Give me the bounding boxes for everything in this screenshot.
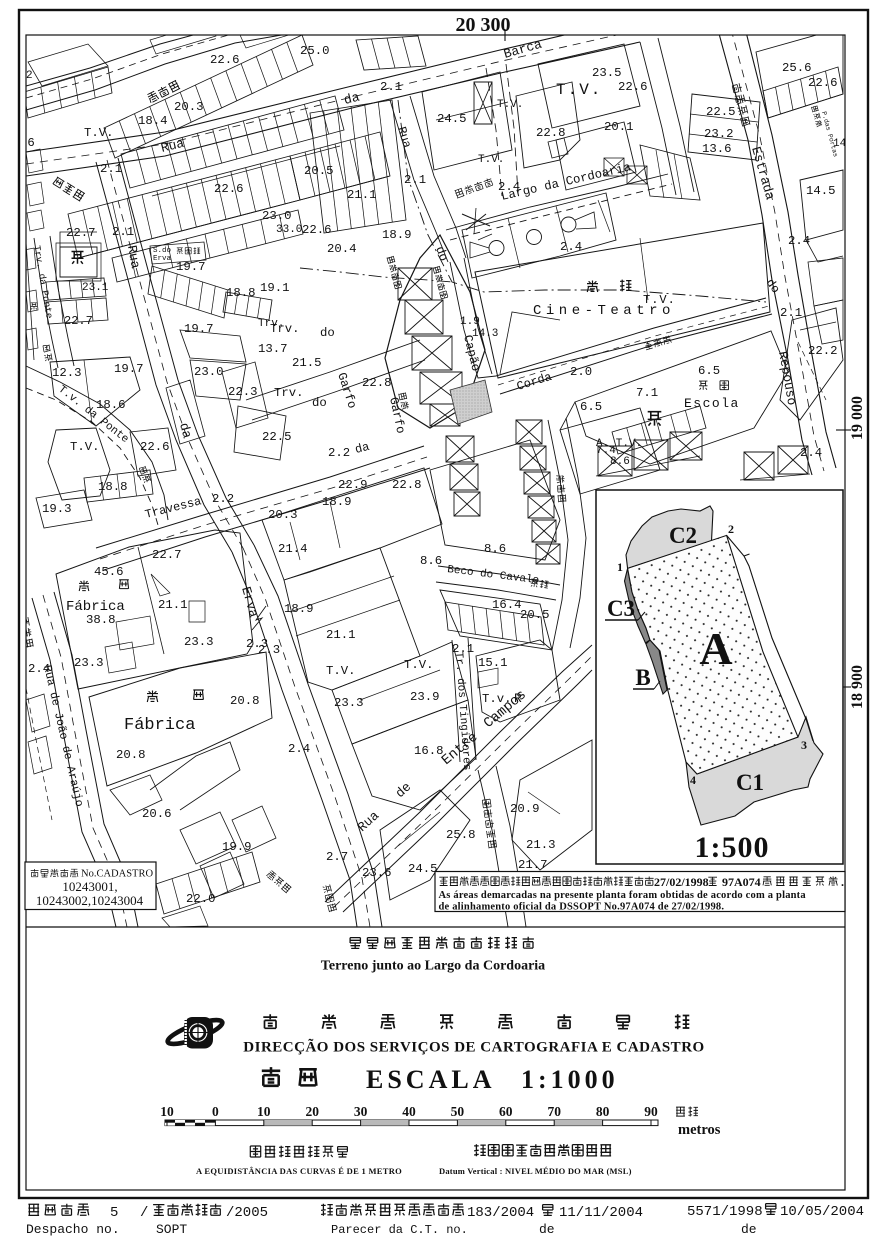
svg-text:10243001,: 10243001, — [62, 879, 117, 894]
svg-text:1:500: 1:500 — [695, 831, 770, 864]
svg-text:13.6: 13.6 — [702, 142, 732, 156]
svg-text:40: 40 — [402, 1104, 416, 1119]
svg-text:33.0: 33.0 — [276, 224, 302, 236]
svg-text:19.7: 19.7 — [184, 322, 214, 336]
svg-text:23.5: 23.5 — [592, 66, 622, 80]
svg-text:18.8: 18.8 — [226, 286, 256, 300]
svg-text:14.3: 14.3 — [472, 328, 498, 340]
svg-text:As áreas demarcadas na present: As áreas demarcadas na presente planta f… — [439, 890, 807, 901]
svg-text:Erva: Erva — [153, 255, 172, 263]
svg-text:11/11/2004: 11/11/2004 — [559, 1205, 643, 1221]
svg-text:10: 10 — [160, 1104, 174, 1119]
svg-text:2.4: 2.4 — [560, 240, 582, 254]
svg-text:T.V.: T.V. — [326, 664, 356, 678]
svg-text:18.8: 18.8 — [98, 480, 128, 494]
svg-text:20.3: 20.3 — [174, 100, 204, 114]
svg-text:20.4: 20.4 — [327, 242, 357, 256]
svg-text:2.2: 2.2 — [212, 492, 234, 506]
svg-text:2: 2 — [26, 70, 33, 82]
svg-text:18.9: 18.9 — [284, 602, 314, 616]
svg-text:22.3: 22.3 — [228, 385, 258, 399]
svg-text:T.V.: T.V. — [404, 658, 434, 672]
svg-text:metros: metros — [678, 1122, 721, 1138]
svg-text:2.2: 2.2 — [328, 446, 350, 460]
svg-text:20.1: 20.1 — [604, 120, 634, 134]
svg-text:Despacho no.: Despacho no. — [26, 1222, 120, 1237]
svg-text:27/02/1998: 27/02/1998 — [654, 875, 709, 889]
svg-text:22.6: 22.6 — [302, 223, 332, 237]
svg-text:23.1: 23.1 — [82, 282, 109, 294]
svg-text:22.9: 22.9 — [338, 478, 368, 492]
svg-text:ESCALA: ESCALA — [366, 1065, 495, 1094]
svg-text:20: 20 — [305, 1104, 319, 1119]
svg-text:24.5: 24.5 — [408, 862, 438, 876]
svg-text:20.5: 20.5 — [520, 608, 550, 622]
svg-text:T.V.: T.V. — [556, 81, 602, 99]
svg-text:19 000: 19 000 — [849, 396, 866, 440]
svg-text:21.3: 21.3 — [526, 838, 556, 852]
svg-text:22.8: 22.8 — [362, 376, 392, 390]
svg-text:22.6: 22.6 — [214, 182, 244, 196]
svg-text:do: do — [312, 396, 327, 410]
svg-text:2.1: 2.1 — [452, 642, 474, 656]
svg-text:25.6: 25.6 — [782, 61, 812, 75]
svg-text:23.9: 23.9 — [410, 690, 440, 704]
svg-text:R: R — [514, 691, 522, 706]
svg-text:14.5: 14.5 — [806, 184, 836, 198]
svg-text:18.9: 18.9 — [382, 228, 412, 242]
svg-text:6.5: 6.5 — [698, 364, 720, 378]
svg-text:80: 80 — [596, 1104, 610, 1119]
svg-text:Datum Vertical : NIVEL MÉDIO D: Datum Vertical : NIVEL MÉDIO DO MAR (MSL… — [439, 1166, 632, 1176]
svg-text:SOPT: SOPT — [156, 1222, 187, 1237]
svg-text:70: 70 — [547, 1104, 561, 1119]
svg-text:/2005: /2005 — [226, 1205, 268, 1221]
svg-text:8.6: 8.6 — [420, 554, 442, 568]
svg-text:8.6: 8.6 — [610, 456, 630, 468]
svg-text:16.8: 16.8 — [414, 744, 444, 758]
svg-text:8.6: 8.6 — [484, 542, 506, 556]
svg-text:21.5: 21.5 — [292, 356, 322, 370]
svg-text:Trv.: Trv. — [274, 386, 304, 400]
svg-text:2.7: 2.7 — [326, 850, 348, 864]
svg-text:1: 1 — [617, 560, 623, 574]
svg-text:C1: C1 — [736, 770, 764, 795]
svg-text:1:1000: 1:1000 — [521, 1065, 619, 1094]
svg-text:2.3: 2.3 — [258, 643, 280, 657]
svg-text:0: 0 — [212, 1104, 219, 1119]
svg-text:18.6: 18.6 — [96, 398, 126, 412]
svg-text:T.V.: T.V. — [84, 126, 114, 140]
svg-text:2.0: 2.0 — [570, 365, 592, 379]
svg-text:5: 5 — [110, 1205, 118, 1221]
svg-text:10243002,10243004: 10243002,10243004 — [36, 893, 144, 908]
svg-text:T.V.: T.V. — [497, 99, 523, 111]
svg-text:10: 10 — [257, 1104, 271, 1119]
svg-text:2: 2 — [728, 522, 734, 536]
svg-text:22.2: 22.2 — [808, 344, 838, 358]
svg-text:2.1: 2.1 — [100, 162, 122, 176]
svg-text:22.6: 22.6 — [618, 80, 648, 94]
svg-text:T.V.: T.V. — [70, 440, 100, 454]
svg-text:23.0: 23.0 — [194, 365, 224, 379]
svg-text:Parecer da C.T. no.: Parecer da C.T. no. — [331, 1223, 468, 1237]
svg-text:20.6: 20.6 — [142, 807, 172, 821]
svg-text:22.5: 22.5 — [262, 430, 292, 444]
svg-text:25.8: 25.8 — [446, 828, 476, 842]
svg-text:4: 4 — [690, 773, 696, 787]
svg-text:30: 30 — [354, 1104, 368, 1119]
svg-text:T.V.: T.V. — [643, 293, 676, 307]
svg-text:97A074: 97A074 — [722, 875, 761, 889]
svg-text:2.4: 2.4 — [28, 662, 50, 676]
svg-text:do: do — [320, 326, 335, 340]
svg-text:21.1: 21.1 — [326, 628, 356, 642]
svg-text:23.0: 23.0 — [262, 209, 292, 223]
svg-text:19.1: 19.1 — [260, 281, 290, 295]
svg-text:Fábrica: Fábrica — [124, 716, 195, 735]
svg-text:21.4: 21.4 — [278, 542, 308, 556]
svg-text:21.1: 21.1 — [158, 598, 188, 612]
svg-text:22.5: 22.5 — [706, 105, 736, 119]
svg-text:de alinhamento oficial da DSSO: de alinhamento oficial da DSSOPT No.97A0… — [439, 902, 725, 913]
svg-text:60: 60 — [499, 1104, 513, 1119]
svg-text:183/2004: 183/2004 — [467, 1205, 534, 1221]
svg-text:Escola: Escola — [684, 396, 740, 411]
svg-text:16.4: 16.4 — [492, 598, 522, 612]
svg-text:22.6: 22.6 — [140, 440, 170, 454]
svg-text:20.5: 20.5 — [304, 164, 334, 178]
svg-text:2.1: 2.1 — [380, 80, 402, 94]
svg-text:25.0: 25.0 — [300, 44, 330, 58]
svg-text:90: 90 — [644, 1104, 658, 1119]
svg-text:C2: C2 — [669, 523, 697, 548]
svg-text:22.8: 22.8 — [392, 478, 422, 492]
svg-text:2.4: 2.4 — [788, 234, 810, 248]
svg-text:.: . — [841, 875, 844, 889]
svg-text:5571/1998: 5571/1998 — [687, 1204, 763, 1220]
svg-text:20.8: 20.8 — [116, 748, 146, 762]
svg-text:C3: C3 — [607, 596, 635, 621]
svg-text:A EQUIDISTÂNCIA DAS CURVAS É D: A EQUIDISTÂNCIA DAS CURVAS É DE 1 METRO — [196, 1166, 402, 1176]
svg-text:2.1: 2.1 — [780, 306, 802, 320]
svg-text:22.8: 22.8 — [536, 126, 566, 140]
svg-text:T.v.: T.v. — [482, 692, 512, 706]
svg-text:2.1: 2.1 — [112, 225, 134, 239]
svg-text:10/05/2004: 10/05/2004 — [780, 1204, 864, 1220]
svg-text:B: B — [635, 665, 650, 690]
svg-text:20.3: 20.3 — [268, 508, 298, 522]
svg-text:7.1: 7.1 — [636, 386, 658, 400]
svg-text:2.4: 2.4 — [498, 180, 520, 194]
svg-text:22.7: 22.7 — [152, 548, 182, 562]
svg-text:22.7: 22.7 — [64, 314, 93, 328]
svg-text:13.7: 13.7 — [258, 342, 288, 356]
svg-text:Terreno junto ao Largo da Cord: Terreno junto ao Largo da Cordoaria — [321, 959, 545, 974]
svg-text:19.3: 19.3 — [42, 502, 72, 516]
svg-text:23.6: 23.6 — [362, 866, 392, 880]
svg-text:T.V.: T.V. — [478, 154, 504, 166]
svg-text:23.3: 23.3 — [74, 656, 104, 670]
svg-text:6.5: 6.5 — [580, 400, 602, 414]
svg-text:15.1: 15.1 — [478, 656, 508, 670]
svg-text:20 300: 20 300 — [456, 14, 511, 36]
svg-text:38.8: 38.8 — [86, 613, 116, 627]
svg-text:23.2: 23.2 — [704, 127, 734, 141]
svg-text:22.7: 22.7 — [66, 226, 96, 240]
svg-text:45.6: 45.6 — [94, 565, 124, 579]
svg-text:de: de — [539, 1222, 555, 1237]
svg-text:3: 3 — [801, 738, 807, 752]
svg-text:12.3: 12.3 — [52, 366, 82, 380]
svg-text:23.3: 23.3 — [334, 696, 364, 710]
svg-text:19.9: 19.9 — [222, 840, 252, 854]
svg-text:Trv.: Trv. — [258, 318, 284, 330]
svg-text:20.8: 20.8 — [230, 694, 260, 708]
svg-text:A: A — [699, 623, 732, 674]
svg-text:19.7: 19.7 — [176, 260, 206, 274]
svg-text:18 900: 18 900 — [849, 665, 866, 709]
svg-text:de: de — [741, 1222, 757, 1237]
svg-text:22.6: 22.6 — [808, 76, 838, 90]
svg-text:19.7: 19.7 — [114, 362, 144, 376]
svg-text:18.9: 18.9 — [322, 495, 352, 509]
svg-text:No.CADASTRO: No.CADASTRO — [81, 869, 153, 880]
svg-text:2.4: 2.4 — [800, 446, 822, 460]
svg-text:20.9: 20.9 — [510, 802, 540, 816]
svg-text:23.3: 23.3 — [184, 635, 214, 649]
svg-text:18.4: 18.4 — [138, 114, 168, 128]
svg-text:22.6: 22.6 — [210, 53, 240, 67]
svg-text:21.7: 21.7 — [518, 858, 548, 872]
svg-text:DIRECÇÃO DOS SERVIÇOS DE CARTO: DIRECÇÃO DOS SERVIÇOS DE CARTOGRAFIA E C… — [243, 1038, 704, 1056]
svg-text:/: / — [140, 1205, 148, 1221]
svg-text:2.4: 2.4 — [288, 742, 310, 756]
svg-text:50: 50 — [451, 1104, 465, 1119]
